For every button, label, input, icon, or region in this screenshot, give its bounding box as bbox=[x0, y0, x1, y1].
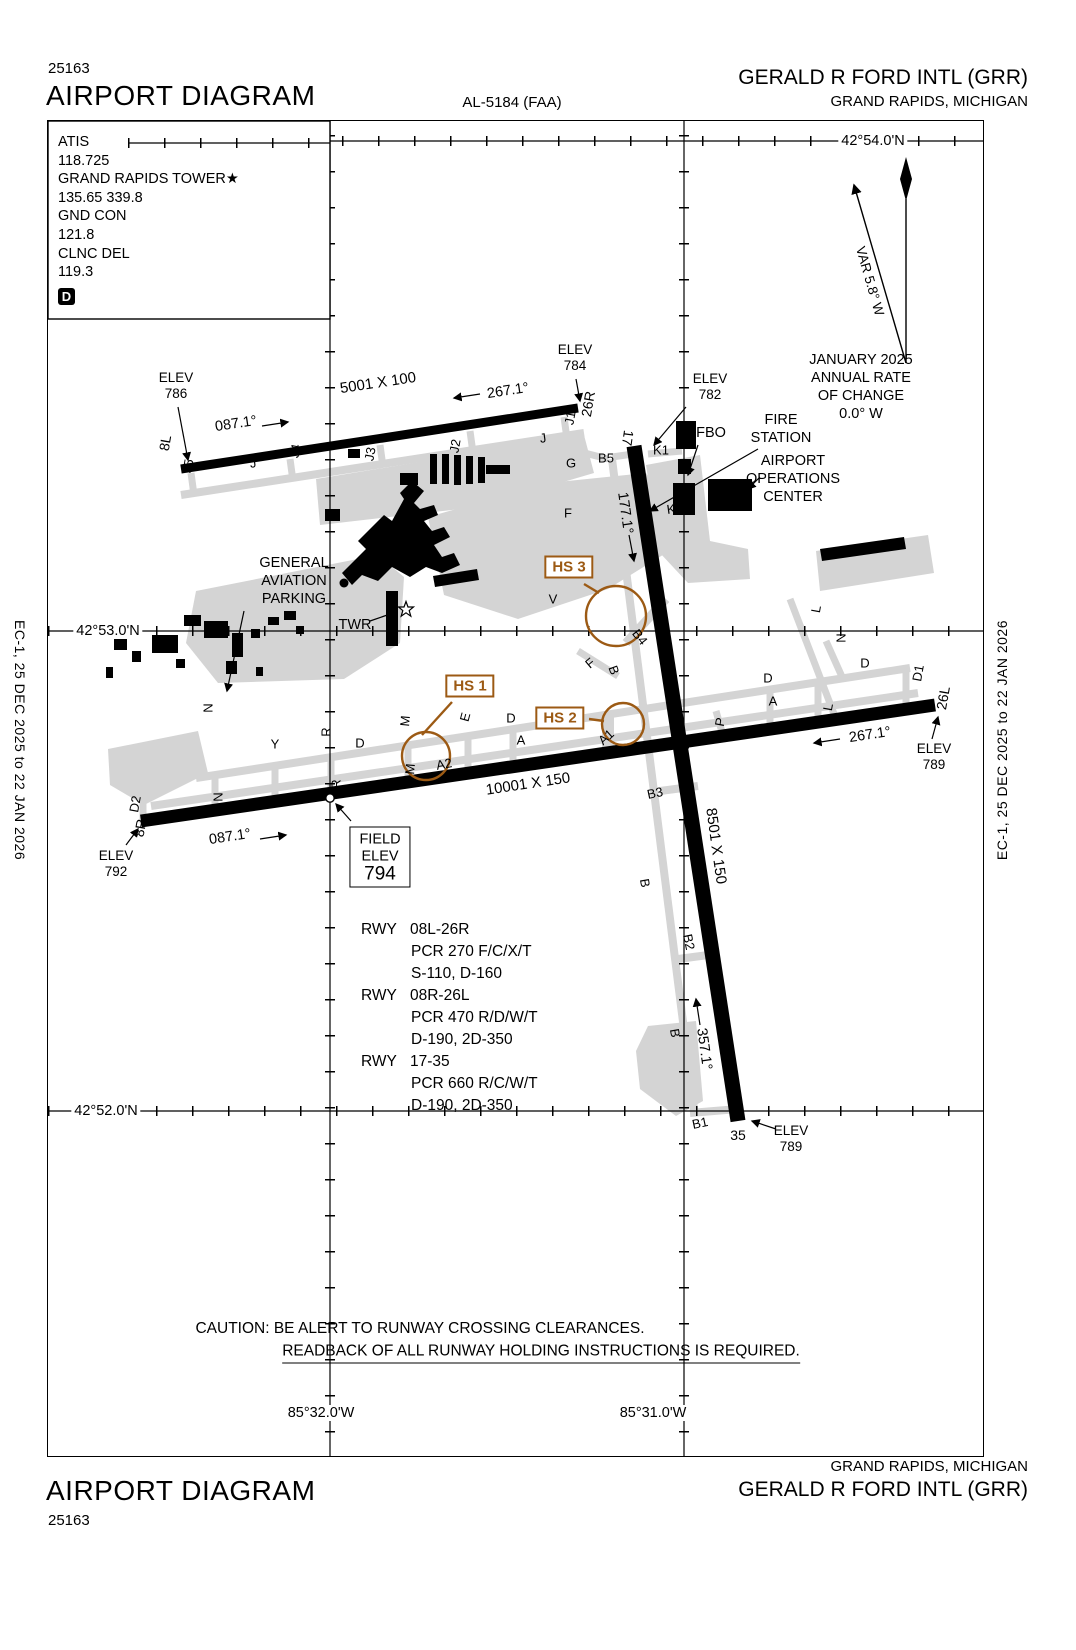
latitude-label-52: 42°52.0'N bbox=[71, 1103, 140, 1119]
atis-label: ATIS bbox=[58, 133, 239, 152]
variation-date-note: JANUARY 2025 ANNUAL RATE OF CHANGE 0.0° … bbox=[800, 351, 922, 423]
taxiway-label-j5: J5 bbox=[179, 458, 196, 474]
taxiway-label-n-east: N bbox=[834, 633, 849, 642]
caution-line1: CAUTION: BE ALERT TO RUNWAY CROSSING CLE… bbox=[195, 1320, 644, 1338]
tower-label: GRAND RAPIDS TOWER★ bbox=[58, 170, 239, 189]
runway-end-35: 35 bbox=[730, 1127, 746, 1143]
latitude-label-53: 42°53.0'N bbox=[73, 623, 142, 639]
taxiway-label-j4: J4 bbox=[286, 443, 303, 459]
taxiway-label-d1: D1 bbox=[909, 664, 927, 683]
hotspot-label-hs3: HS 3 bbox=[544, 556, 593, 579]
latitude-label-54: 42°54.0'N bbox=[838, 133, 907, 149]
procedure-reference: AL-5184 (FAA) bbox=[462, 94, 561, 111]
taxiway-label-j2: J2 bbox=[446, 438, 463, 454]
chart-frame: ATIS 118.725 GRAND RAPIDS TOWER★ 135.65 … bbox=[47, 120, 984, 1457]
taxiway-label-f-north: F bbox=[564, 506, 572, 521]
airport-operations-center-label: AIRPORT OPERATIONS CENTER bbox=[746, 452, 840, 506]
elevation-8R: ELEV792 bbox=[99, 848, 134, 880]
taxiway-label-k1: K1 bbox=[653, 443, 669, 458]
taxiway-label-m-lower: M bbox=[402, 763, 418, 775]
taxiway-label-n-west1: N bbox=[211, 792, 226, 801]
clearance-frequency: 119.3 bbox=[58, 263, 239, 282]
elevation-17: ELEV782 bbox=[693, 371, 728, 403]
fbo-label: FBO bbox=[696, 425, 726, 441]
atis-frequency: 118.725 bbox=[58, 152, 239, 171]
elevation-26R: ELEV784 bbox=[558, 342, 593, 374]
fire-station-label: FIRE STATION bbox=[751, 411, 812, 447]
airport-city-bottom: GRAND RAPIDS, MICHIGAN bbox=[830, 1458, 1028, 1475]
taxiway-label-d-west: D bbox=[355, 736, 364, 751]
airport-name-bottom: GERALD R FORD INTL (GRR) bbox=[738, 1478, 1028, 1502]
elevation-8L: ELEV786 bbox=[159, 370, 194, 402]
page-title-bottom: AIRPORT DIAGRAM bbox=[46, 1475, 315, 1507]
taxiway-label-g: G bbox=[566, 456, 576, 471]
taxiway-label-d-east1: D bbox=[763, 671, 772, 686]
runway-end-8L: 8L bbox=[156, 434, 174, 452]
comms-panel: ATIS 118.725 GRAND RAPIDS TOWER★ 135.65 … bbox=[58, 133, 239, 306]
ground-label: GND CON bbox=[58, 207, 239, 226]
taxiway-label-m-upper: M bbox=[397, 715, 413, 727]
field-elevation-dot bbox=[326, 794, 334, 802]
longitude-label-31: 85°31.0'W bbox=[617, 1405, 690, 1421]
hotspot-label-hs1: HS 1 bbox=[445, 675, 494, 698]
runway-end-17: 17 bbox=[619, 429, 637, 447]
elevation-26L: ELEV789 bbox=[917, 741, 952, 773]
airport-diagram-sheet: 25163 AIRPORT DIAGRAM AL-5184 (FAA) GERA… bbox=[0, 0, 1076, 1650]
chart-number-bottom: 25163 bbox=[48, 1512, 90, 1529]
taxiway-label-d-mid: D bbox=[506, 711, 515, 726]
field-elevation-box: FIELD ELEV 794 bbox=[349, 827, 410, 888]
datis-symbol: D bbox=[58, 288, 75, 305]
edge-effective-dates-left: EC-1, 25 DEC 2025 to 22 JAN 2026 bbox=[12, 620, 28, 860]
general-aviation-parking-label: GENERAL AVIATION PARKING bbox=[259, 554, 328, 608]
taxiway-label-b5: B5 bbox=[598, 451, 614, 466]
taxiway-label-j1: J1 bbox=[561, 410, 578, 426]
taxiway-label-j3: J3 bbox=[361, 446, 378, 462]
taxiway-label-d-east2: D bbox=[860, 656, 869, 671]
airport-city-top: GRAND RAPIDS, MICHIGAN bbox=[830, 93, 1028, 110]
runway-end-8R: 8R bbox=[131, 818, 150, 838]
taxiway-label-a-east: A bbox=[769, 694, 778, 709]
caution-line2: READBACK OF ALL RUNWAY HOLDING INSTRUCTI… bbox=[282, 1343, 800, 1364]
hotspot-label-hs2: HS 2 bbox=[535, 707, 584, 730]
tower-frequency: 135.65 339.8 bbox=[58, 189, 239, 208]
runway-data-table: RWY08L-26R PCR 270 F/C/X/T S-110, D-160 … bbox=[361, 919, 538, 1117]
taxiway-label-v: V bbox=[549, 592, 558, 607]
longitude-label-32: 85°32.0'W bbox=[285, 1405, 358, 1421]
edge-effective-dates-right: EC-1, 25 DEC 2025 to 22 JAN 2026 bbox=[994, 620, 1010, 860]
taxiway-label-y: Y bbox=[271, 737, 280, 752]
taxiway-label-a2: A2 bbox=[435, 755, 453, 773]
taxiway-label-d2: D2 bbox=[126, 795, 144, 814]
chart-number-top: 25163 bbox=[48, 60, 90, 77]
clearance-label: CLNC DEL bbox=[58, 245, 239, 264]
taxiway-label-n-west2: N bbox=[201, 703, 216, 712]
taxiway-label-k: K bbox=[666, 501, 677, 517]
taxiway-label-r-upper: R bbox=[319, 727, 334, 736]
taxiway-label-b2: B2 bbox=[680, 933, 698, 952]
airport-name-top: GERALD R FORD INTL (GRR) bbox=[738, 66, 1028, 90]
ground-frequency: 121.8 bbox=[58, 226, 239, 245]
elevation-35: ELEV789 bbox=[774, 1123, 809, 1155]
taxiway-label-a-mid: A bbox=[517, 733, 526, 748]
taxiway-label-r-lower: R bbox=[329, 779, 344, 788]
page-title: AIRPORT DIAGRAM bbox=[46, 80, 315, 112]
tower-label: TWR bbox=[338, 617, 371, 633]
